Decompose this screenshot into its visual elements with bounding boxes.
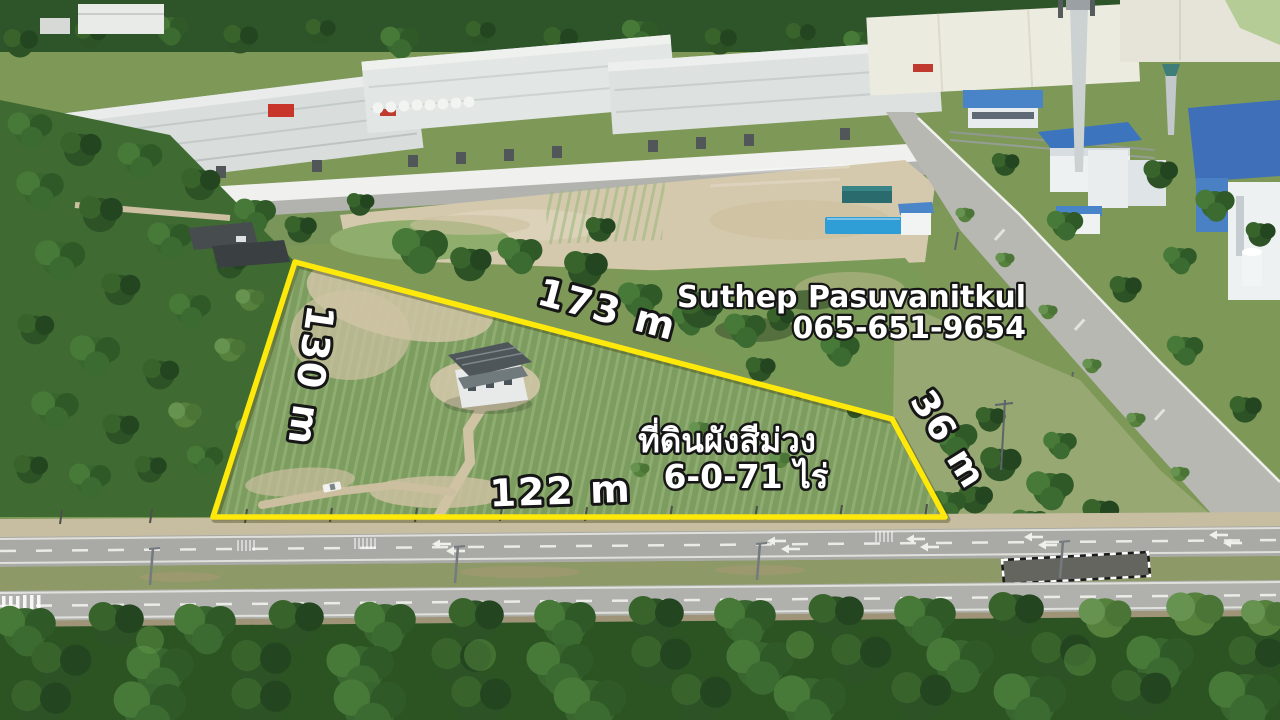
storage-tank	[1242, 252, 1262, 286]
plot-zoning-text: ที่ดินผังสีม่วง	[638, 417, 816, 460]
contact-name: Suthep Pasuvanitkul	[677, 280, 1026, 315]
scene-svg: 173 m 130 m 122 m 36 m ที่ดินผังสีม่วง 6…	[0, 0, 1280, 720]
aerial-photo: 173 m 130 m 122 m 36 m ที่ดินผังสีม่วง 6…	[0, 0, 1280, 720]
measurement-bottom: 122 m	[489, 467, 633, 516]
red-truck	[268, 104, 294, 117]
bottom-forest	[0, 592, 1280, 720]
red-sign-2	[913, 64, 933, 72]
plot-area-text: 6-0-71 ไร่	[663, 457, 828, 496]
contact-phone: 065-651-9654	[792, 311, 1026, 346]
